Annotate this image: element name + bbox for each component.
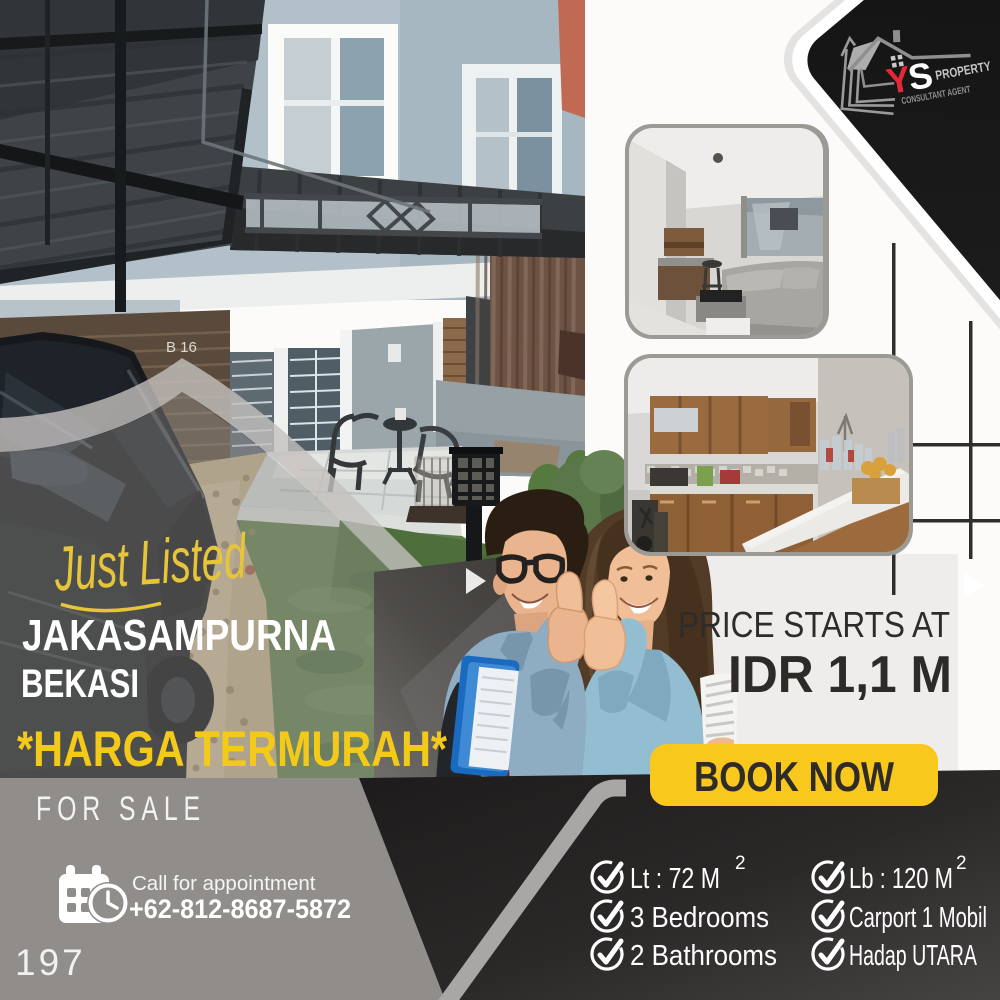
svg-text:2: 2	[735, 853, 746, 874]
svg-text:Carport 1 Mobil: Carport 1 Mobil	[849, 902, 987, 934]
svg-text:FOR SALE: FOR SALE	[36, 790, 206, 828]
svg-text:BOOK NOW: BOOK NOW	[694, 753, 894, 800]
svg-text:3 Bedrooms: 3 Bedrooms	[630, 902, 769, 934]
svg-text:Lb : 120 M: Lb : 120 M	[849, 863, 953, 895]
svg-text:JAKASAMPURNA: JAKASAMPURNA	[22, 611, 336, 660]
svg-text:2 Bathrooms: 2 Bathrooms	[630, 940, 777, 972]
svg-text:Just Listed: Just Listed	[51, 521, 249, 604]
svg-text:IDR 1,1 M: IDR 1,1 M	[728, 646, 952, 704]
svg-text:*HARGA TERMURAH*: *HARGA TERMURAH*	[17, 721, 447, 777]
svg-text:B 16: B 16	[166, 339, 197, 356]
svg-text:BEKASI: BEKASI	[21, 662, 139, 706]
svg-text:197: 197	[15, 942, 86, 983]
svg-text:Lt : 72 M: Lt : 72 M	[630, 863, 720, 895]
svg-text:+62-812-8687-5872: +62-812-8687-5872	[129, 894, 351, 924]
svg-text:2: 2	[956, 853, 967, 874]
svg-text:PRICE STARTS AT: PRICE STARTS AT	[678, 604, 950, 645]
svg-text:Hadap UTARA: Hadap UTARA	[849, 940, 977, 972]
svg-text:Call for appointment: Call for appointment	[132, 872, 316, 895]
